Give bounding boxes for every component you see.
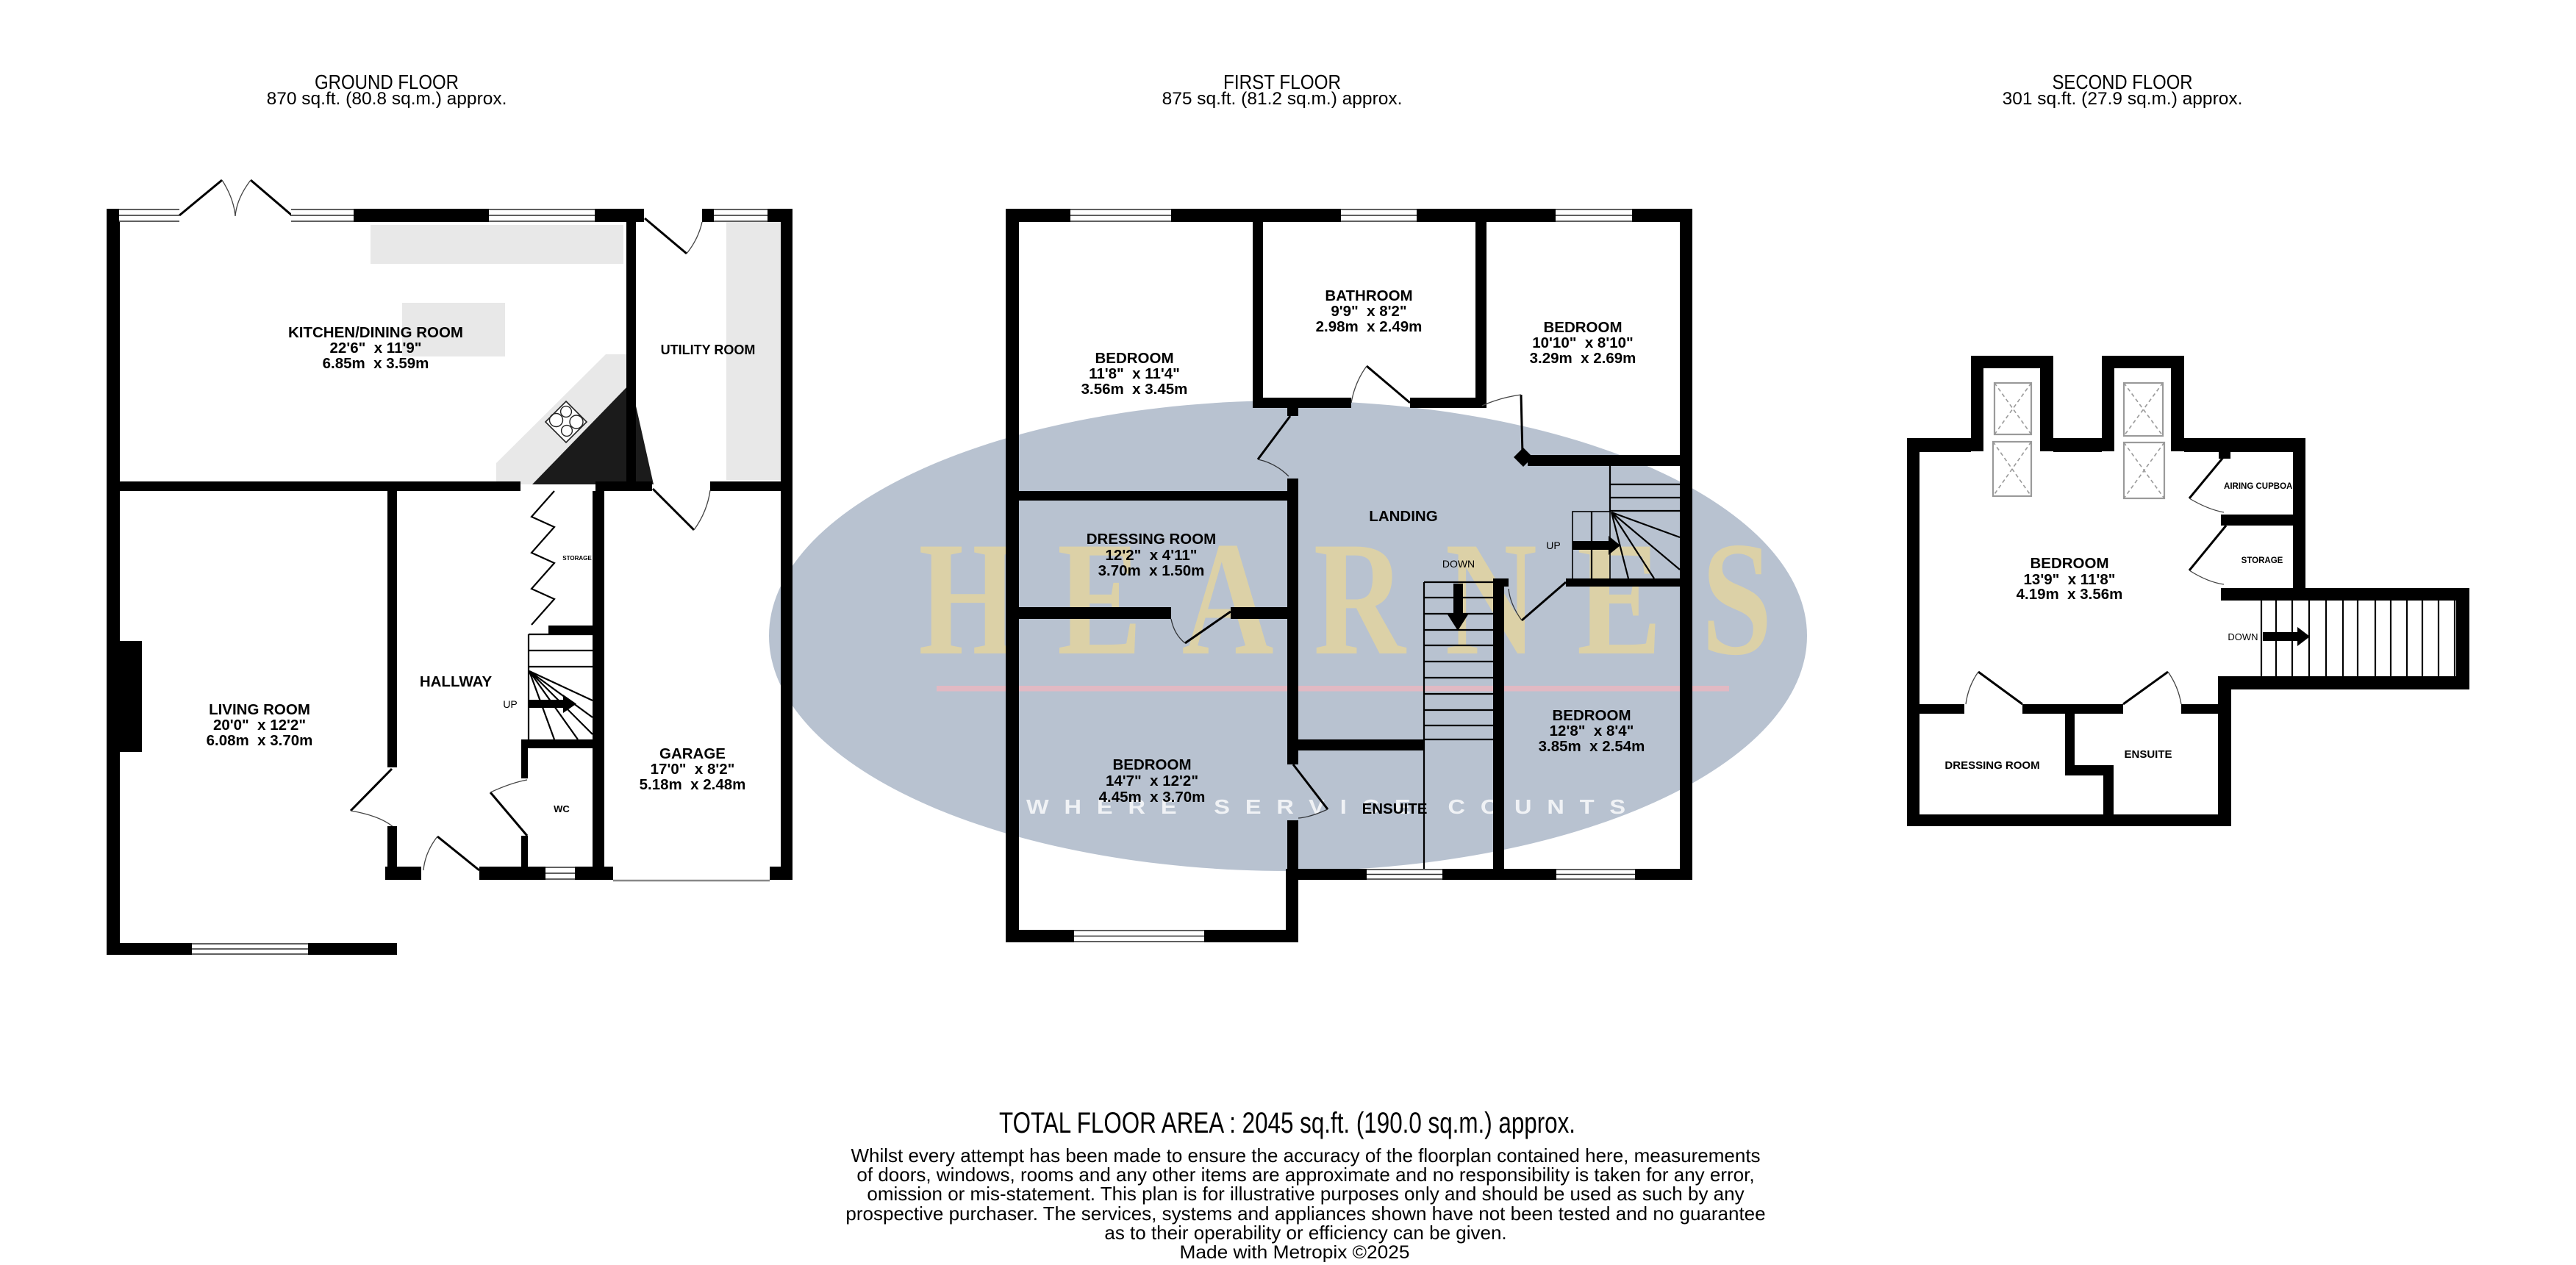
svg-text:6.08m x 3.70m: 6.08m x 3.70m [207,732,313,749]
svg-text:omission or mis-statement. Thi: omission or mis-statement. This plan is … [867,1183,1744,1205]
svg-text:Made with Metropix ©2025: Made with Metropix ©2025 [1180,1242,1410,1263]
svg-text:12'8" x 8'4": 12'8" x 8'4" [1550,723,1634,739]
svg-text:UP: UP [1546,540,1560,551]
svg-text:BEDROOM: BEDROOM [1095,350,1173,367]
svg-text:3.56m x 3.45m: 3.56m x 3.45m [1081,381,1188,398]
svg-text:ENSUITE: ENSUITE [1362,800,1428,817]
svg-text:UP: UP [503,698,517,710]
svg-text:GARAGE: GARAGE [659,745,726,762]
svg-text:17'0" x 8'2": 17'0" x 8'2" [651,761,735,778]
svg-text:22'6" x 11'9": 22'6" x 11'9" [330,340,422,356]
svg-text:301 sq.ft. (27.9 sq.m.) approx: 301 sq.ft. (27.9 sq.m.) approx. [2003,89,2243,109]
svg-text:BEDROOM: BEDROOM [2030,555,2108,572]
svg-text:ENSUITE: ENSUITE [2124,748,2172,761]
svg-text:DOWN: DOWN [2228,631,2258,642]
svg-text:6.85m x 3.59m: 6.85m x 3.59m [323,355,429,372]
svg-text:AIRING CUPBOARD: AIRING CUPBOARD [2224,482,2305,491]
svg-text:LANDING: LANDING [1369,508,1437,525]
svg-text:DRESSING ROOM: DRESSING ROOM [1087,531,1217,548]
svg-text:875 sq.ft. (81.2 sq.m.) approx: 875 sq.ft. (81.2 sq.m.) approx. [1162,89,1403,109]
svg-text:DOWN: DOWN [1442,558,1475,570]
svg-text:DRESSING ROOM: DRESSING ROOM [1944,759,2039,772]
svg-text:10'10" x 8'10": 10'10" x 8'10" [1532,334,1633,351]
svg-text:BEDROOM: BEDROOM [1543,319,1622,336]
svg-text:BEDROOM: BEDROOM [1112,756,1191,773]
svg-text:HALLWAY: HALLWAY [420,673,493,690]
svg-text:STORAGE: STORAGE [2242,556,2283,565]
svg-text:UTILITY ROOM: UTILITY ROOM [661,343,756,357]
svg-text:5.18m x 2.48m: 5.18m x 2.48m [640,776,746,793]
svg-text:BATHROOM: BATHROOM [1325,287,1412,304]
svg-text:STORAGE: STORAGE [562,555,592,562]
svg-text:2.98m x 2.49m: 2.98m x 2.49m [1316,318,1423,335]
svg-text:11'8" x 11'4": 11'8" x 11'4" [1089,365,1180,382]
svg-text:TOTAL FLOOR AREA : 2045 sq.ft.: TOTAL FLOOR AREA : 2045 sq.ft. (190.0 sq… [999,1107,1575,1139]
svg-text:BEDROOM: BEDROOM [1552,707,1631,724]
svg-text:WC: WC [554,803,570,814]
svg-text:20'0" x 12'2": 20'0" x 12'2" [213,717,306,734]
svg-text:3.29m x 2.69m: 3.29m x 2.69m [1530,350,1636,367]
svg-text:4.45m x 3.70m: 4.45m x 3.70m [1099,789,1206,806]
svg-text:14'7" x 12'2": 14'7" x 12'2" [1106,773,1198,789]
svg-text:870 sq.ft. (80.8 sq.m.) approx: 870 sq.ft. (80.8 sq.m.) approx. [267,89,507,109]
svg-text:9'9" x 8'2": 9'9" x 8'2" [1331,303,1406,320]
svg-text:KITCHEN/DINING ROOM: KITCHEN/DINING ROOM [288,324,463,341]
svg-text:12'2" x 4'11": 12'2" x 4'11" [1106,547,1198,564]
svg-text:as to their operability or eff: as to their operability or efficiency ca… [1104,1222,1506,1244]
svg-text:4.19m x 3.56m: 4.19m x 3.56m [2017,586,2123,603]
svg-text:LIVING ROOM: LIVING ROOM [209,701,310,718]
svg-text:3.70m x 1.50m: 3.70m x 1.50m [1098,562,1205,579]
svg-text:3.85m x 2.54m: 3.85m x 2.54m [1539,738,1645,755]
